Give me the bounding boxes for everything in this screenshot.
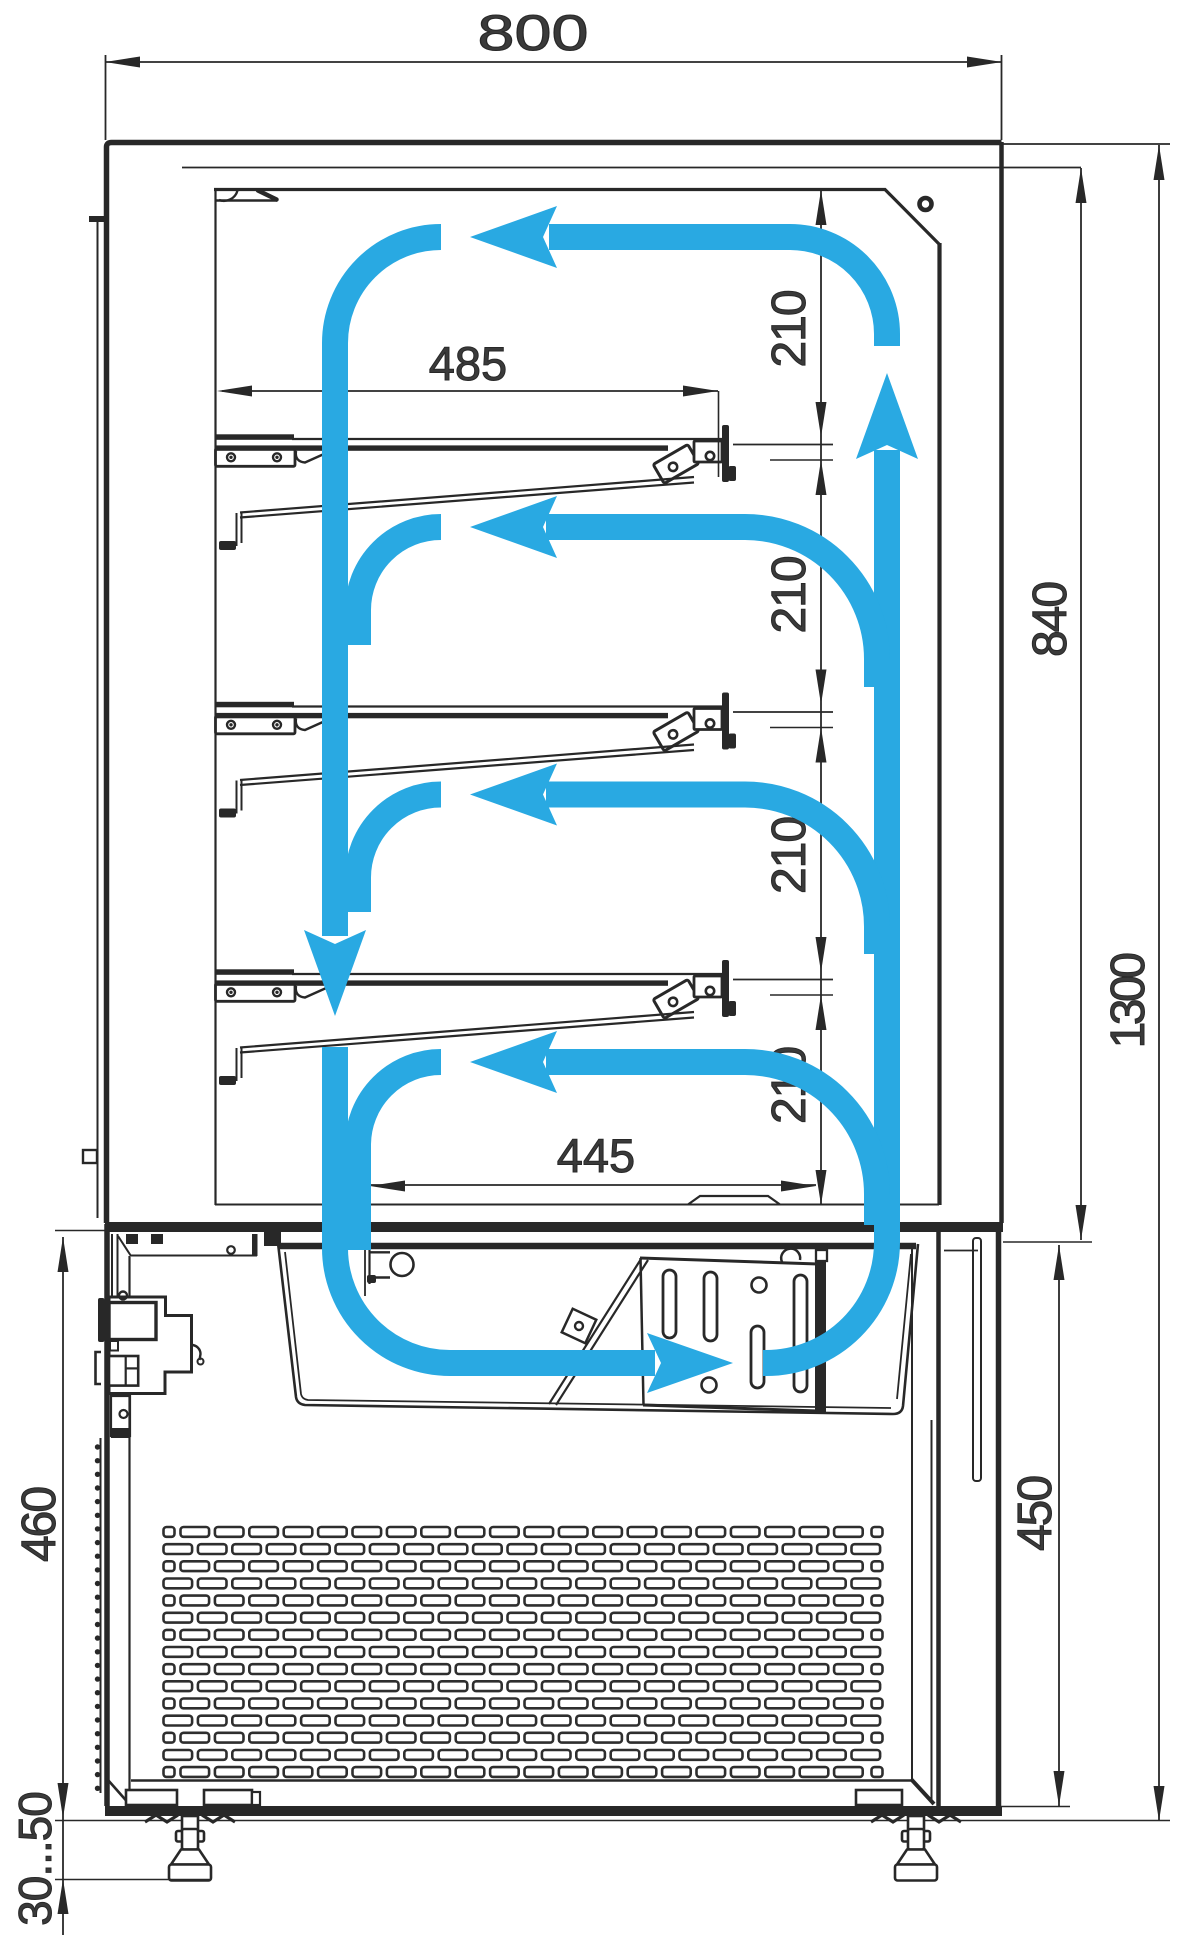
svg-text:450: 450 — [1009, 1477, 1062, 1551]
svg-text:30...50: 30...50 — [9, 1792, 61, 1926]
svg-text:800: 800 — [478, 6, 589, 61]
svg-text:485: 485 — [429, 337, 507, 390]
svg-text:210: 210 — [763, 817, 816, 894]
svg-text:460: 460 — [13, 1488, 66, 1562]
svg-text:445: 445 — [557, 1129, 635, 1182]
svg-text:210: 210 — [763, 290, 816, 367]
svg-text:1300: 1300 — [1102, 954, 1155, 1049]
svg-text:210: 210 — [763, 556, 816, 633]
svg-text:840: 840 — [1024, 583, 1077, 657]
